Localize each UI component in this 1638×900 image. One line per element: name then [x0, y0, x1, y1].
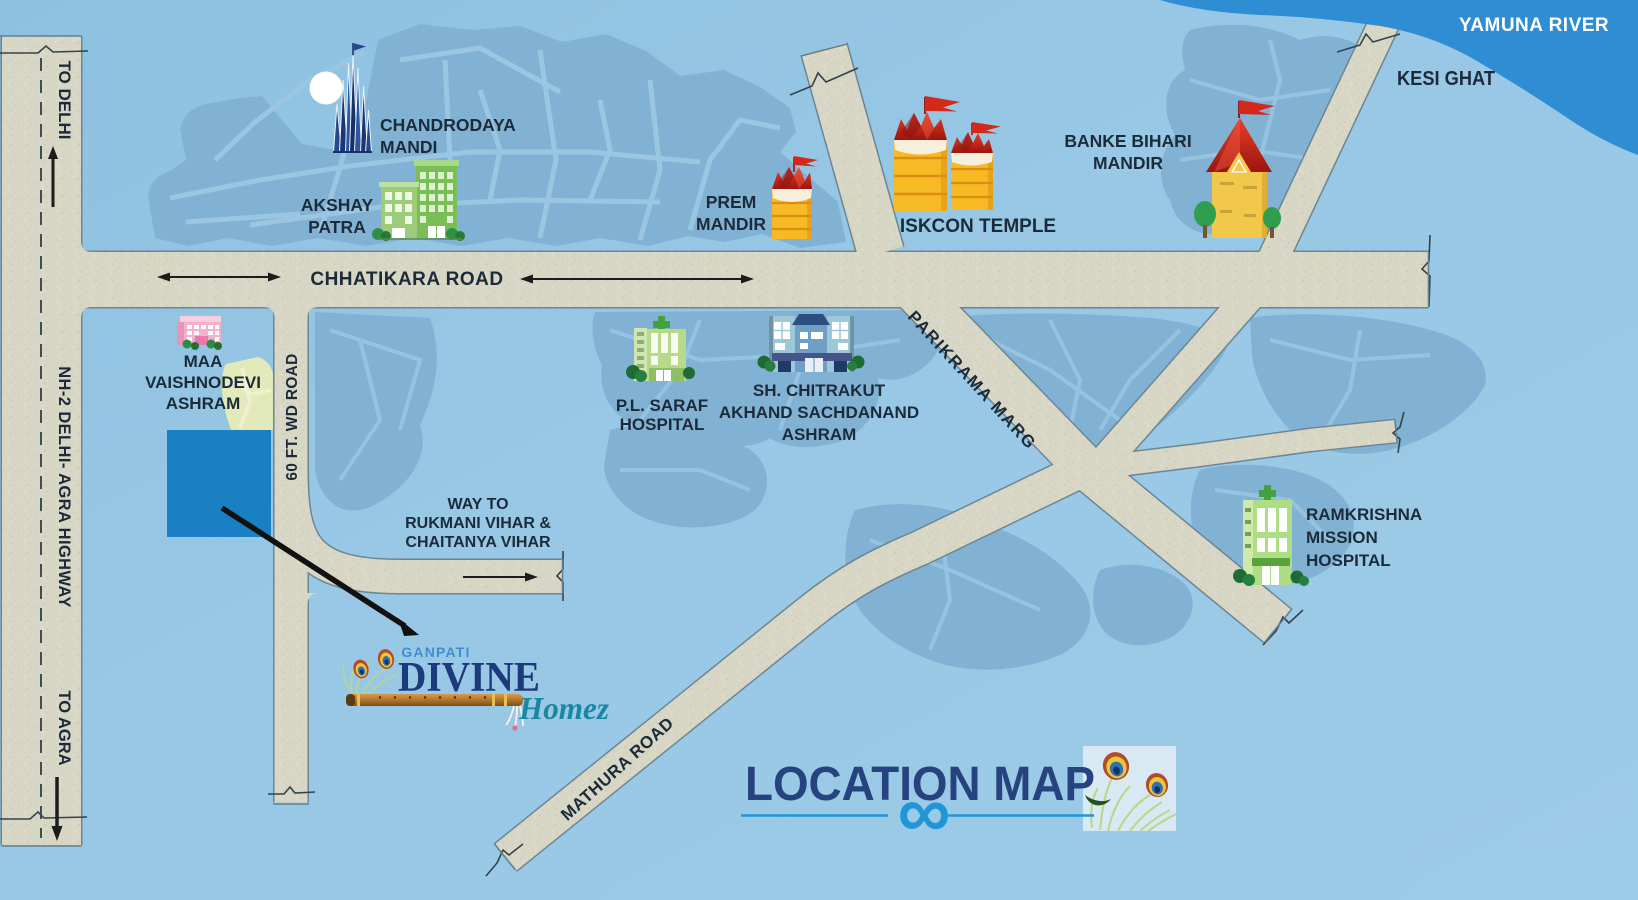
svg-text:Homez: Homez — [518, 690, 610, 726]
svg-text:RAMKRISHNA: RAMKRISHNA — [1306, 505, 1422, 524]
svg-text:BANKE BIHARI: BANKE BIHARI — [1064, 131, 1191, 151]
svg-text:ISKCON TEMPLE: ISKCON TEMPLE — [900, 216, 1056, 237]
svg-text:WAY TO: WAY TO — [447, 496, 508, 513]
svg-text:HOSPITAL: HOSPITAL — [1306, 551, 1391, 570]
svg-text:MANDIR: MANDIR — [1093, 153, 1163, 173]
svg-text:CHANDRODAYA: CHANDRODAYA — [380, 115, 516, 135]
svg-text:MANDIR: MANDIR — [696, 214, 766, 234]
svg-text:TO DELHI: TO DELHI — [55, 60, 74, 139]
svg-text:MISSION: MISSION — [1306, 528, 1378, 547]
svg-text:SH. CHITRAKUT: SH. CHITRAKUT — [753, 381, 886, 400]
svg-text:60 FT. WD ROAD: 60 FT. WD ROAD — [284, 353, 301, 480]
svg-text:∞: ∞ — [898, 770, 951, 853]
svg-text:P.L. SARAF: P.L. SARAF — [616, 396, 708, 415]
svg-text:PREM: PREM — [706, 192, 757, 212]
svg-text:CHAITANYA VIHAR: CHAITANYA VIHAR — [405, 534, 551, 551]
svg-text:YAMUNA RIVER: YAMUNA RIVER — [1459, 15, 1609, 36]
svg-text:RUKMANI VIHAR &: RUKMANI VIHAR & — [405, 515, 551, 532]
svg-text:VAISHNODEVI: VAISHNODEVI — [145, 373, 261, 392]
svg-text:AKSHAY: AKSHAY — [301, 195, 374, 215]
svg-text:MANDI: MANDI — [380, 137, 437, 157]
svg-text:CHHATIKARA ROAD: CHHATIKARA ROAD — [310, 269, 503, 290]
svg-text:PATRA: PATRA — [308, 217, 366, 237]
svg-text:NH-2 DELHI- AGRA HIGHWAY: NH-2 DELHI- AGRA HIGHWAY — [55, 366, 73, 608]
svg-text:AKHAND SACHDANAND: AKHAND SACHDANAND — [719, 403, 919, 422]
svg-text:TO AGRA: TO AGRA — [55, 690, 73, 765]
svg-text:KESI GHAT: KESI GHAT — [1397, 68, 1495, 90]
svg-text:MAA: MAA — [184, 352, 223, 371]
svg-text:ASHRAM: ASHRAM — [782, 425, 857, 444]
svg-text:ASHRAM: ASHRAM — [166, 394, 241, 413]
svg-text:HOSPITAL: HOSPITAL — [620, 415, 705, 434]
